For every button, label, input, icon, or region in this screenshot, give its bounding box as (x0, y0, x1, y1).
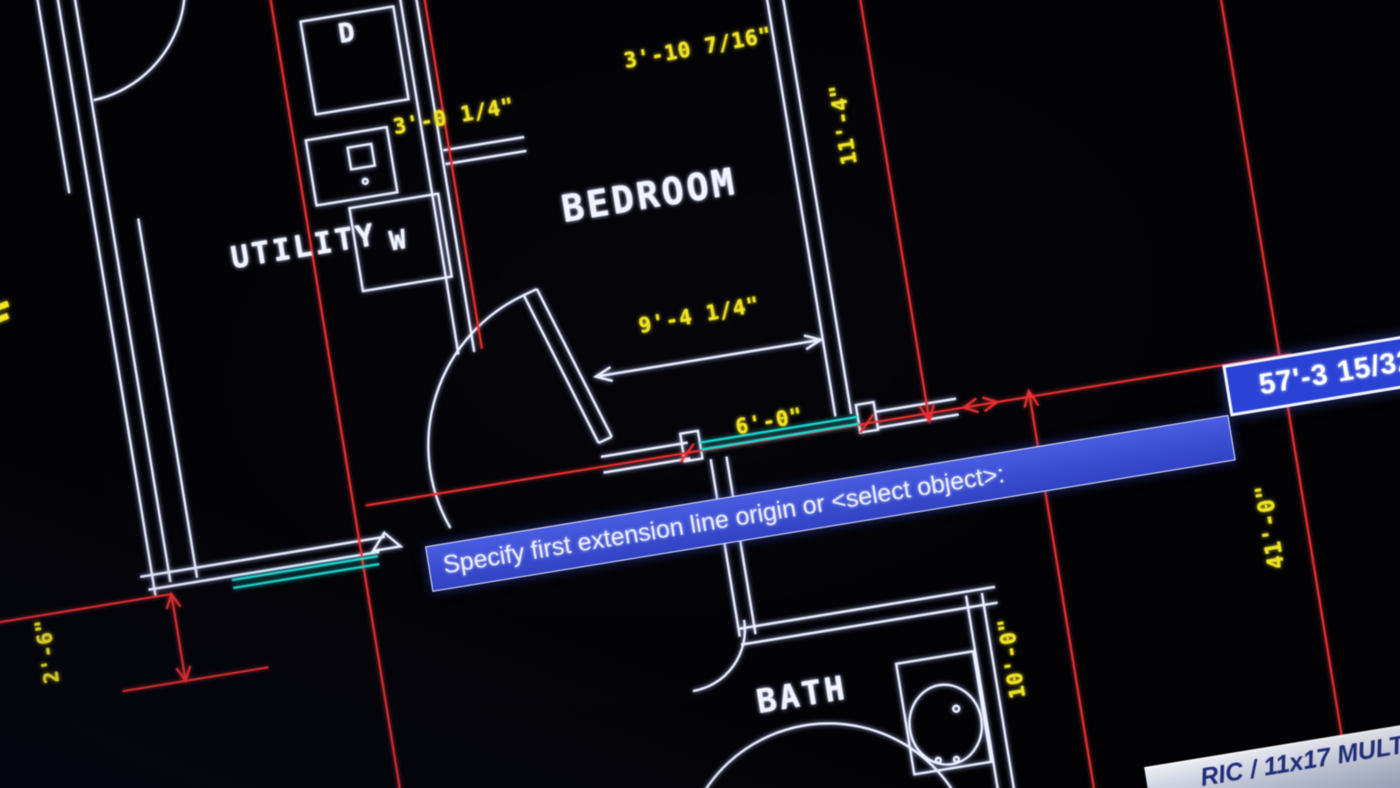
clipped-dimension-fragment (0, 304, 11, 323)
bedroom-width-dim-line (595, 333, 822, 384)
entry-door-swing (74, 0, 202, 100)
cad-canvas[interactable]: UTILITY BEDROOM BATH D W 3'-0 1/4" 3'-10… (0, 0, 1400, 788)
bedroom-door (404, 281, 622, 530)
toilet-fixture (896, 651, 991, 774)
window-post-right (856, 402, 878, 433)
bath-swing-arc (659, 701, 975, 788)
floorplan-drawing (0, 0, 1400, 788)
bath-door-swing (683, 620, 754, 691)
wall-lines[interactable] (35, 0, 1039, 788)
red-extension-lines[interactable] (0, 0, 1365, 788)
threshold-triangle (370, 531, 400, 551)
